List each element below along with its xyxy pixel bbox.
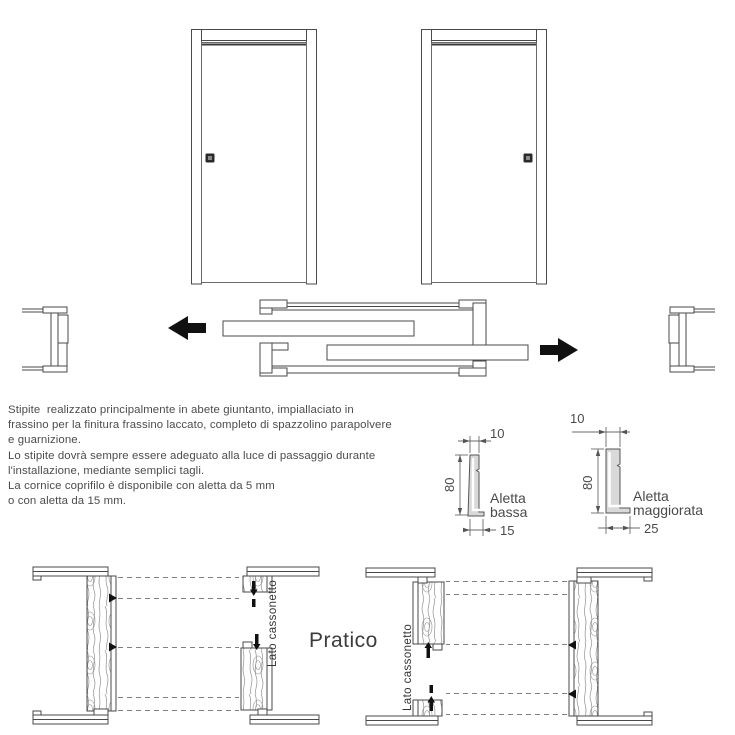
door-leaf-plan-bottom: [327, 345, 528, 360]
door-leaf-plan-top: [223, 321, 414, 336]
door-handle-icon: [524, 154, 533, 163]
dim-top: 10: [490, 426, 504, 441]
dim-bottom: 15: [500, 523, 514, 538]
door-elevation-right: [421, 29, 547, 287]
aletta-bassa-diagram: 10 80 15 Aletta bassa: [430, 405, 540, 540]
profile-label-line2: maggiorata: [633, 502, 703, 518]
description-line: l'installazione, mediante semplici tagli…: [8, 464, 392, 479]
coprifilo-profile: [468, 455, 484, 516]
sliding-plan-view: [160, 293, 585, 383]
lato-cassonetto-label-left: Lato cassonetto: [267, 580, 279, 667]
description-line: Lo stipite dovrà sempre essere adeguato …: [8, 449, 392, 464]
aletta-maggiorata-diagram: 10 80 25 Aletta maggiorata: [558, 402, 733, 540]
dim-height: 80: [580, 476, 595, 490]
lato-cassonetto-label-right: Lato cassonetto: [402, 624, 414, 711]
description-line: Stipite realizzato principalmente in abe…: [8, 403, 392, 418]
description-line: La cornice coprifilo è disponibile con a…: [8, 479, 392, 494]
dim-height: 80: [442, 478, 457, 492]
catalog-page: Stipite realizzato principalmente in abe…: [0, 0, 735, 735]
door-handle-icon: [206, 154, 215, 163]
description-line: o con aletta da 15 mm.: [8, 494, 392, 509]
description-line: e guarnizione.: [8, 433, 392, 448]
arrow-left-icon: [168, 316, 206, 340]
door-elevation-left: [191, 29, 317, 287]
description-line: frassino per la finitura frassino laccat…: [8, 418, 392, 433]
dim-top: 10: [570, 411, 584, 426]
dim-bottom: 25: [644, 521, 658, 536]
series-name-label: Pratico: [309, 629, 378, 653]
jamb-profile-left: [22, 296, 74, 378]
description-paragraph: Stipite realizzato principalmente in abe…: [8, 403, 392, 509]
arrow-right-icon: [540, 338, 578, 362]
profile-label-line2: bassa: [490, 504, 528, 520]
jamb-profile-right: [663, 296, 715, 378]
